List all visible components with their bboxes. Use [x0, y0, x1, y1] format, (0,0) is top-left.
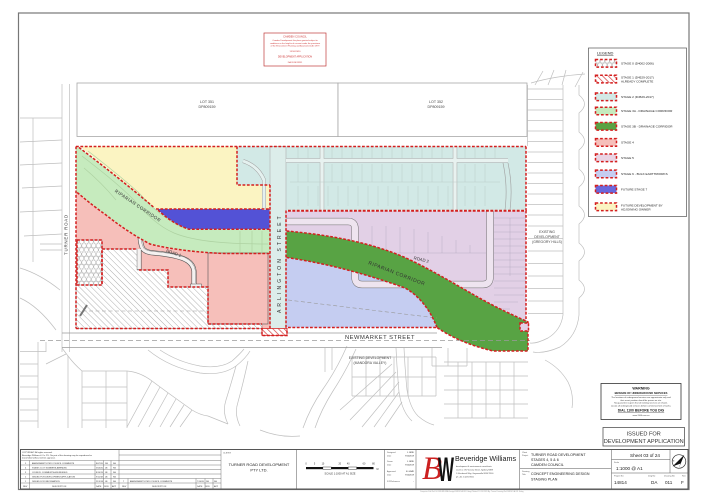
- svg-text:LOT 352: LOT 352: [429, 100, 443, 104]
- svg-text:STAGES 4, 5 & 6: STAGES 4, 5 & 6: [531, 458, 559, 462]
- svg-text:J. BIRD: J. BIRD: [407, 461, 414, 463]
- svg-text:DIAL 1100 BEFORE YOU DIG: DIAL 1100 BEFORE YOU DIG: [618, 409, 665, 413]
- svg-text:Scale: Scale: [614, 462, 620, 464]
- svg-text:1:1000 @ A1: 1:1000 @ A1: [616, 466, 643, 471]
- svg-text:TURNER ROAD: TURNER ROAD: [64, 214, 69, 255]
- svg-text:DA 2016/139/1: DA 2016/139/1: [288, 61, 303, 64]
- svg-text:ISSUED FOR DEVELOPMENT APPLICA: ISSUED FOR DEVELOPMENT APPLICATION: [32, 476, 75, 479]
- svg-text:REV: REV: [23, 486, 28, 488]
- svg-text:CAMDEN COUNCIL: CAMDEN COUNCIL: [531, 463, 564, 467]
- svg-text:ARLINGTON STREET: ARLINGTON STREET: [277, 213, 283, 313]
- svg-text:their exact position should be: their exact position should be proven on…: [620, 399, 662, 402]
- svg-text:ALREADY COMPLETE: ALREADY COMPLETE: [621, 80, 653, 84]
- svg-text:DP809159: DP809159: [428, 105, 445, 109]
- svg-text:21/9/18: 21/9/18: [96, 481, 104, 483]
- svg-text:EXISTING: EXISTING: [539, 230, 555, 234]
- svg-text:COUNCIL COMMENTS ADDRESSED: COUNCIL COMMENTS ADDRESSED: [32, 471, 68, 474]
- svg-text:of the Environment Planning an: of the Environment Planning and Assessme…: [271, 45, 321, 48]
- svg-text:DEVELOPMENT: DEVELOPMENT: [534, 235, 560, 239]
- svg-text:7/10/20: 7/10/20: [197, 481, 205, 483]
- svg-text:STAGE 4: STAGE 4: [621, 141, 634, 145]
- svg-text:(GREGORY HILLS): (GREGORY HILLS): [532, 240, 562, 244]
- svg-text:Locate all underground service: Locate all underground services before c…: [611, 404, 672, 407]
- svg-text:9/10/2019: 9/10/2019: [405, 465, 415, 467]
- svg-text:Approved: Approved: [387, 470, 396, 473]
- svg-text:Project: Project: [522, 454, 529, 457]
- svg-text:TURNER ROAD DEVELOPMENT: TURNER ROAD DEVELOPMENT: [229, 462, 290, 467]
- svg-text:The locations of underground s: The locations of underground services ar…: [611, 396, 671, 399]
- svg-text:DATE: DATE: [197, 485, 203, 488]
- svg-text:CLIENT:: CLIENT:: [223, 453, 232, 455]
- svg-text:STAGE 6 - BULK EARTHWORKS: STAGE 6 - BULK EARTHWORKS: [621, 172, 668, 176]
- svg-text:14814: 14814: [614, 480, 627, 485]
- svg-text:Beveridge Williams & Co. P/L.: Beveridge Williams & Co. P/L. No part of…: [22, 454, 92, 457]
- svg-text:NG: NG: [113, 481, 117, 483]
- svg-text:DRN: DRN: [205, 486, 210, 488]
- svg-text:Designed: Designed: [387, 452, 395, 454]
- svg-text:ISSUED FOR: ISSUED FOR: [627, 432, 661, 438]
- svg-text:Drawing No:: Drawing No:: [664, 476, 675, 478]
- svg-text:DESCRIPTION: DESCRIPTION: [152, 486, 167, 488]
- svg-text:DEVELOPMENT APPLICATION: DEVELOPMENT APPLICATION: [604, 439, 684, 445]
- svg-text:No guarantee is given that all: No guarantee is given that all existing …: [614, 402, 668, 405]
- svg-text:9/10/2019: 9/10/2019: [405, 456, 415, 458]
- svg-text:13/10/2020: 13/10/2020: [290, 51, 302, 53]
- svg-text:LEGEND: LEGEND: [597, 51, 614, 56]
- svg-text:NEWMARKET STREET: NEWMARKET STREET: [345, 335, 415, 341]
- svg-text:N. GRAY: N. GRAY: [406, 470, 415, 473]
- svg-text:J. BIRD: J. BIRD: [407, 452, 414, 454]
- svg-text:TURNER ROAD DEVELOPMENT: TURNER ROAD DEVELOPMENT: [531, 453, 586, 457]
- svg-text:Drawn: Drawn: [387, 461, 393, 463]
- svg-text:transmitted without written ap: transmitted without written approval.: [22, 457, 56, 460]
- svg-text:WARNING: WARNING: [632, 387, 650, 391]
- svg-text:conditions as the heights of c: conditions as the heights of consent und…: [270, 42, 320, 45]
- svg-text:ISSUED FOR INFORMATION: ISSUED FOR INFORMATION: [32, 480, 60, 483]
- svg-text:AMENDMENTS PER COUNCIL COMMENT: AMENDMENTS PER COUNCIL COMMENTS: [32, 462, 75, 465]
- svg-text:ADJOINING OWNER: ADJOINING OWNER: [621, 208, 651, 212]
- svg-text:NG: NG: [214, 481, 218, 483]
- svg-text:Computer File Ref: H:\14\14814: Computer File Ref: H:\14\14814\DA Design…: [420, 490, 524, 493]
- svg-text:DA: DA: [651, 480, 658, 485]
- svg-text:development & environment cons: development & environment consultants: [456, 465, 492, 468]
- svg-text:CAMDEN COUNCIL: CAMDEN COUNCIL: [283, 35, 307, 39]
- svg-text:W: W: [438, 451, 454, 489]
- svg-text:Dwg No:: Dwg No:: [648, 476, 656, 478]
- svg-text:AMENDMENTS PER COUNCIL COMMENT: AMENDMENTS PER COUNCIL COMMENTS: [130, 480, 173, 483]
- svg-text:APP: APP: [112, 485, 117, 488]
- svg-text:COPYRIGHT: All rights reserved: COPYRIGHT: All rights reserved.: [22, 451, 53, 454]
- svg-text:STAGING PLAN: STAGING PLAN: [531, 478, 558, 482]
- svg-text:CONCEPT ENGINEERING DESIGN: CONCEPT ENGINEERING DESIGN: [531, 472, 590, 476]
- svg-text:STAGE 4 LOT NUMBERS AMENDED: STAGE 4 LOT NUMBERS AMENDED: [32, 467, 68, 470]
- svg-text:ph +61 2 4225 8555: ph +61 2 4225 8555: [456, 477, 475, 479]
- svg-text:DEVELOPMENT APPLICATION: DEVELOPMENT APPLICATION: [278, 56, 312, 59]
- svg-text:8/07/20: 8/07/20: [96, 463, 104, 465]
- svg-text:F: F: [681, 480, 684, 485]
- svg-text:LOT 351: LOT 351: [200, 100, 214, 104]
- svg-text:SCALE 1:1000 AT A1 SIZE: SCALE 1:1000 AT A1 SIZE: [324, 472, 355, 476]
- svg-text:Rev:: Rev:: [682, 476, 687, 478]
- svg-text:011: 011: [665, 480, 673, 485]
- svg-text:Project No:: Project No:: [614, 475, 624, 478]
- svg-text:REV: REV: [122, 486, 127, 488]
- svg-text:9/11/18: 9/11/18: [96, 477, 104, 479]
- svg-text:DESCRIPTION: DESCRIPTION: [52, 486, 67, 488]
- svg-text:Beveridge Williams: Beveridge Williams: [455, 454, 517, 463]
- svg-text:1 Glenbrook Way, Gwynneville N: 1 Glenbrook Way, Gwynneville NSW 2500: [456, 473, 494, 475]
- svg-text:STAGE 3B - DRAINAGE CORRIDOR: STAGE 3B - DRAINAGE CORRIDOR: [621, 125, 673, 129]
- svg-text:STAGE 2 (D4529-2017): STAGE 2 (D4529-2017): [621, 95, 654, 99]
- svg-text:NG: NG: [113, 477, 117, 479]
- svg-text:STAGE 5: STAGE 5: [621, 156, 634, 160]
- svg-text:APP: APP: [214, 485, 219, 488]
- svg-text:Sheet 03 of 24: Sheet 03 of 24: [630, 453, 660, 458]
- svg-text:FUTURE STAGE 7: FUTURE STAGE 7: [621, 188, 648, 192]
- svg-text:9/10/2019: 9/10/2019: [405, 475, 415, 477]
- svg-text:5/03/20: 5/03/20: [96, 468, 104, 470]
- svg-text:NG: NG: [113, 463, 117, 465]
- svg-text:DRN: DRN: [104, 486, 109, 488]
- svg-text:www.1100.com.au: www.1100.com.au: [633, 415, 651, 417]
- svg-text:PTY LTD.: PTY LTD.: [250, 468, 267, 473]
- svg-text:EXISTING DEVELOPMENT: EXISTING DEVELOPMENT: [349, 356, 391, 360]
- svg-text:STAGE 0 (D4002-2006): STAGE 0 (D4002-2006): [621, 62, 654, 66]
- svg-text:M: M: [377, 468, 379, 471]
- svg-text:R.P.Reference: R.P.Reference: [387, 481, 401, 483]
- svg-text:(MANDORA VALLEY): (MANDORA VALLEY): [354, 361, 387, 365]
- svg-text:NG: NG: [113, 472, 117, 474]
- svg-text:Drawing: Drawing: [522, 471, 529, 473]
- svg-text:Level 4, 170 Victoria Street,: Level 4, 170 Victoria Street, Sydney NSW: [456, 469, 493, 472]
- svg-text:DATE: DATE: [96, 485, 102, 488]
- svg-text:STAGE 3A - DRAINAGE CORRIDOR: STAGE 3A - DRAINAGE CORRIDOR: [621, 109, 673, 113]
- svg-text:8/10/19: 8/10/19: [96, 472, 104, 474]
- svg-text:Camden Development this plans: Camden Development this plans granted su…: [272, 39, 318, 42]
- svg-text:Client: Client: [522, 451, 528, 454]
- svg-text:BEWARE OF UNDERGROUND SERVICES: BEWARE OF UNDERGROUND SERVICES: [615, 391, 668, 395]
- svg-text:DP809159: DP809159: [199, 105, 216, 109]
- svg-text:NG: NG: [113, 468, 117, 470]
